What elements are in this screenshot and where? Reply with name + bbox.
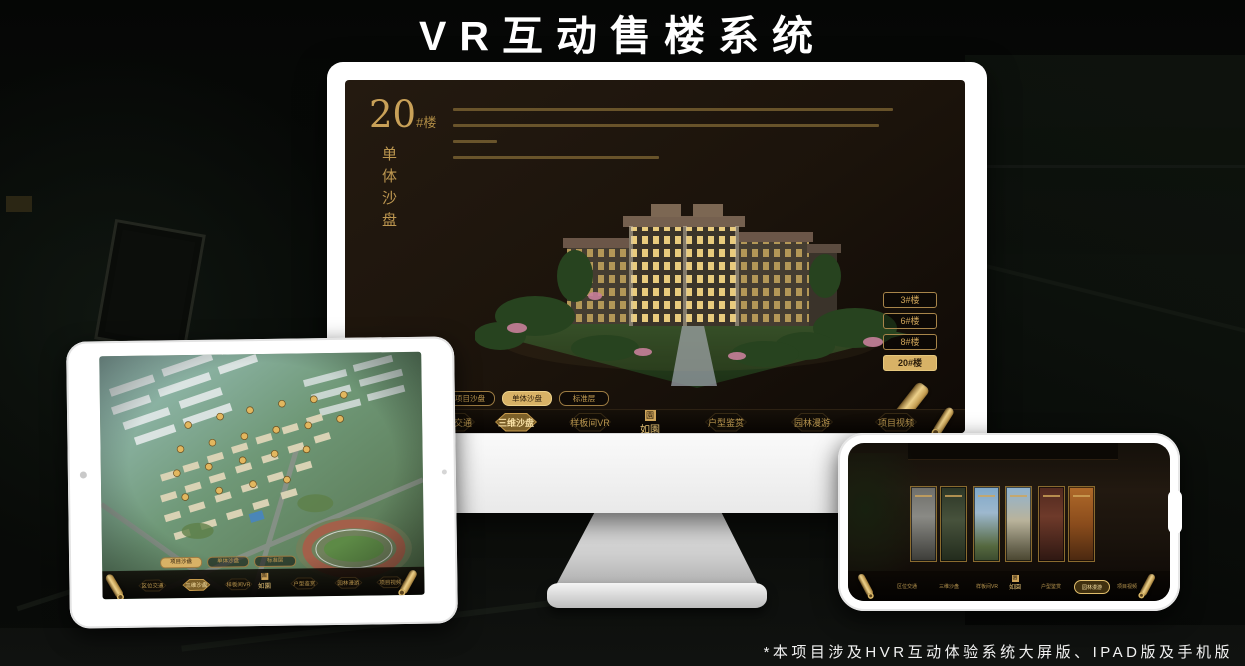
gallery-panel[interactable] <box>973 486 1000 562</box>
tablet-screen: 项目沙盘 单体沙盘 标准层 区位交通 三维沙盘 样板间VR <box>99 352 424 599</box>
subtab-standard-floor[interactable]: 标准层 <box>559 391 609 406</box>
scroll-ornament-icon[interactable] <box>857 573 874 597</box>
nav-item-project-video[interactable]: 项目视频 <box>867 412 925 432</box>
subtab-project-sandbox[interactable]: 项目沙盘 <box>160 557 202 569</box>
description-text-line <box>453 124 879 127</box>
nav-item-project-video[interactable]: 项目视频 <box>1110 580 1144 592</box>
interior-ceiling-beam <box>908 443 1118 460</box>
footnote: *本项目涉及HVR互动体验系统大屏版、IPAD版及手机版 <box>764 641 1233 662</box>
tablet-home-button[interactable] <box>442 469 447 474</box>
description-text-line <box>453 140 497 143</box>
monitor-stand-base <box>547 583 767 608</box>
gallery-panel[interactable] <box>1068 486 1095 562</box>
seal-logo-icon: 園 <box>1012 575 1019 582</box>
subtab-single-sandbox[interactable]: 单体沙盘 <box>207 556 249 568</box>
floor-button-20[interactable]: 20#楼 <box>883 355 937 371</box>
nav-item-location[interactable]: 区位交通 <box>890 580 924 592</box>
background-plaque <box>94 219 206 355</box>
floor-button-6[interactable]: 6#楼 <box>883 313 937 329</box>
page-title: VR互动售楼系统 <box>0 2 1245 62</box>
poster-canvas: VR互动售楼系统 *本项目涉及HVR互动体验系统大屏版、IPAD版及手机版 20… <box>0 0 1245 666</box>
tablet-subtab-group: 项目沙盘 单体沙盘 标准层 <box>160 556 296 569</box>
tablet-nav-bar: 项目沙盘 单体沙盘 标准层 区位交通 三维沙盘 样板间VR <box>102 567 424 599</box>
nav-item-showroom-vr[interactable]: 样板间VR <box>970 580 1004 592</box>
headline-number: 20 <box>369 93 416 136</box>
headline-suffix: #楼 <box>416 115 436 130</box>
nav-item-showroom-vr[interactable]: 样板间VR <box>561 412 619 432</box>
gallery-panel[interactable] <box>910 486 937 562</box>
tablet-device: 项目沙盘 单体沙盘 标准层 区位交通 三维沙盘 样板间VR <box>66 336 458 628</box>
floor-button-8[interactable]: 8#楼 <box>883 334 937 350</box>
nav-item-floorplan[interactable]: 户型鉴赏 <box>284 576 324 591</box>
seal-logo-icon: 園 <box>645 410 656 421</box>
nav-item-floorplan[interactable]: 户型鉴赏 <box>697 412 755 432</box>
phone-screen: 区位交通 三维沙盘 样板间VR 園 如園 户型鉴赏 园林漫游 项目视频 <box>848 443 1170 601</box>
tablet-camera-icon <box>80 471 87 478</box>
nav-item-garden-roam[interactable]: 园林漫游 <box>1074 580 1110 594</box>
phone-device: 区位交通 三维沙盘 样板间VR 園 如園 户型鉴赏 园林漫游 项目视频 <box>838 433 1180 611</box>
description-text-line <box>453 108 893 111</box>
gallery-panel[interactable] <box>940 486 967 562</box>
nav-item-3d-sandbox[interactable]: 三维沙盘 <box>487 412 545 432</box>
subtab-single-sandbox[interactable]: 单体沙盘 <box>502 391 552 406</box>
background-speck <box>6 196 32 212</box>
nav-item-garden-roam[interactable]: 园林漫游 <box>783 412 841 432</box>
building-3d-model[interactable] <box>475 156 915 396</box>
phone-notch <box>1168 490 1182 534</box>
nav-item-3d-sandbox[interactable]: 三维沙盘 <box>176 578 216 593</box>
headline-subtitle: 单体沙盘 <box>379 146 400 234</box>
floor-button-group: 3#楼 6#楼 8#楼 20#楼 <box>883 292 939 376</box>
scroll-ornament-icon[interactable] <box>104 573 124 599</box>
brand-logo: 園 如園 <box>1004 575 1026 591</box>
building-headline: 20#楼 <box>369 96 436 133</box>
floor-button-3[interactable]: 3#楼 <box>883 292 937 308</box>
background-road-line <box>984 264 1245 340</box>
scroll-ornament-icon[interactable] <box>932 406 956 433</box>
subtab-group: 项目沙盘 单体沙盘 标准层 <box>445 391 609 406</box>
nav-item-floorplan[interactable]: 户型鉴赏 <box>1034 580 1068 592</box>
gallery-panel[interactable] <box>1005 486 1032 562</box>
phone-nav-bar: 区位交通 三维沙盘 样板间VR 園 如園 户型鉴赏 园林漫游 项目视频 <box>848 571 1170 601</box>
brand-logo: 園 如園 <box>628 410 672 433</box>
subtab-standard-floor[interactable]: 标准层 <box>254 556 296 568</box>
gallery-panel[interactable] <box>1038 486 1065 562</box>
nav-item-garden-roam[interactable]: 园林漫游 <box>328 576 368 591</box>
nav-item-3d-sandbox[interactable]: 三维沙盘 <box>932 580 966 592</box>
monitor-stand-neck <box>555 510 759 587</box>
nav-item-location[interactable]: 区位交通 <box>132 578 172 593</box>
brand-logo: 園 如園 <box>252 573 276 590</box>
